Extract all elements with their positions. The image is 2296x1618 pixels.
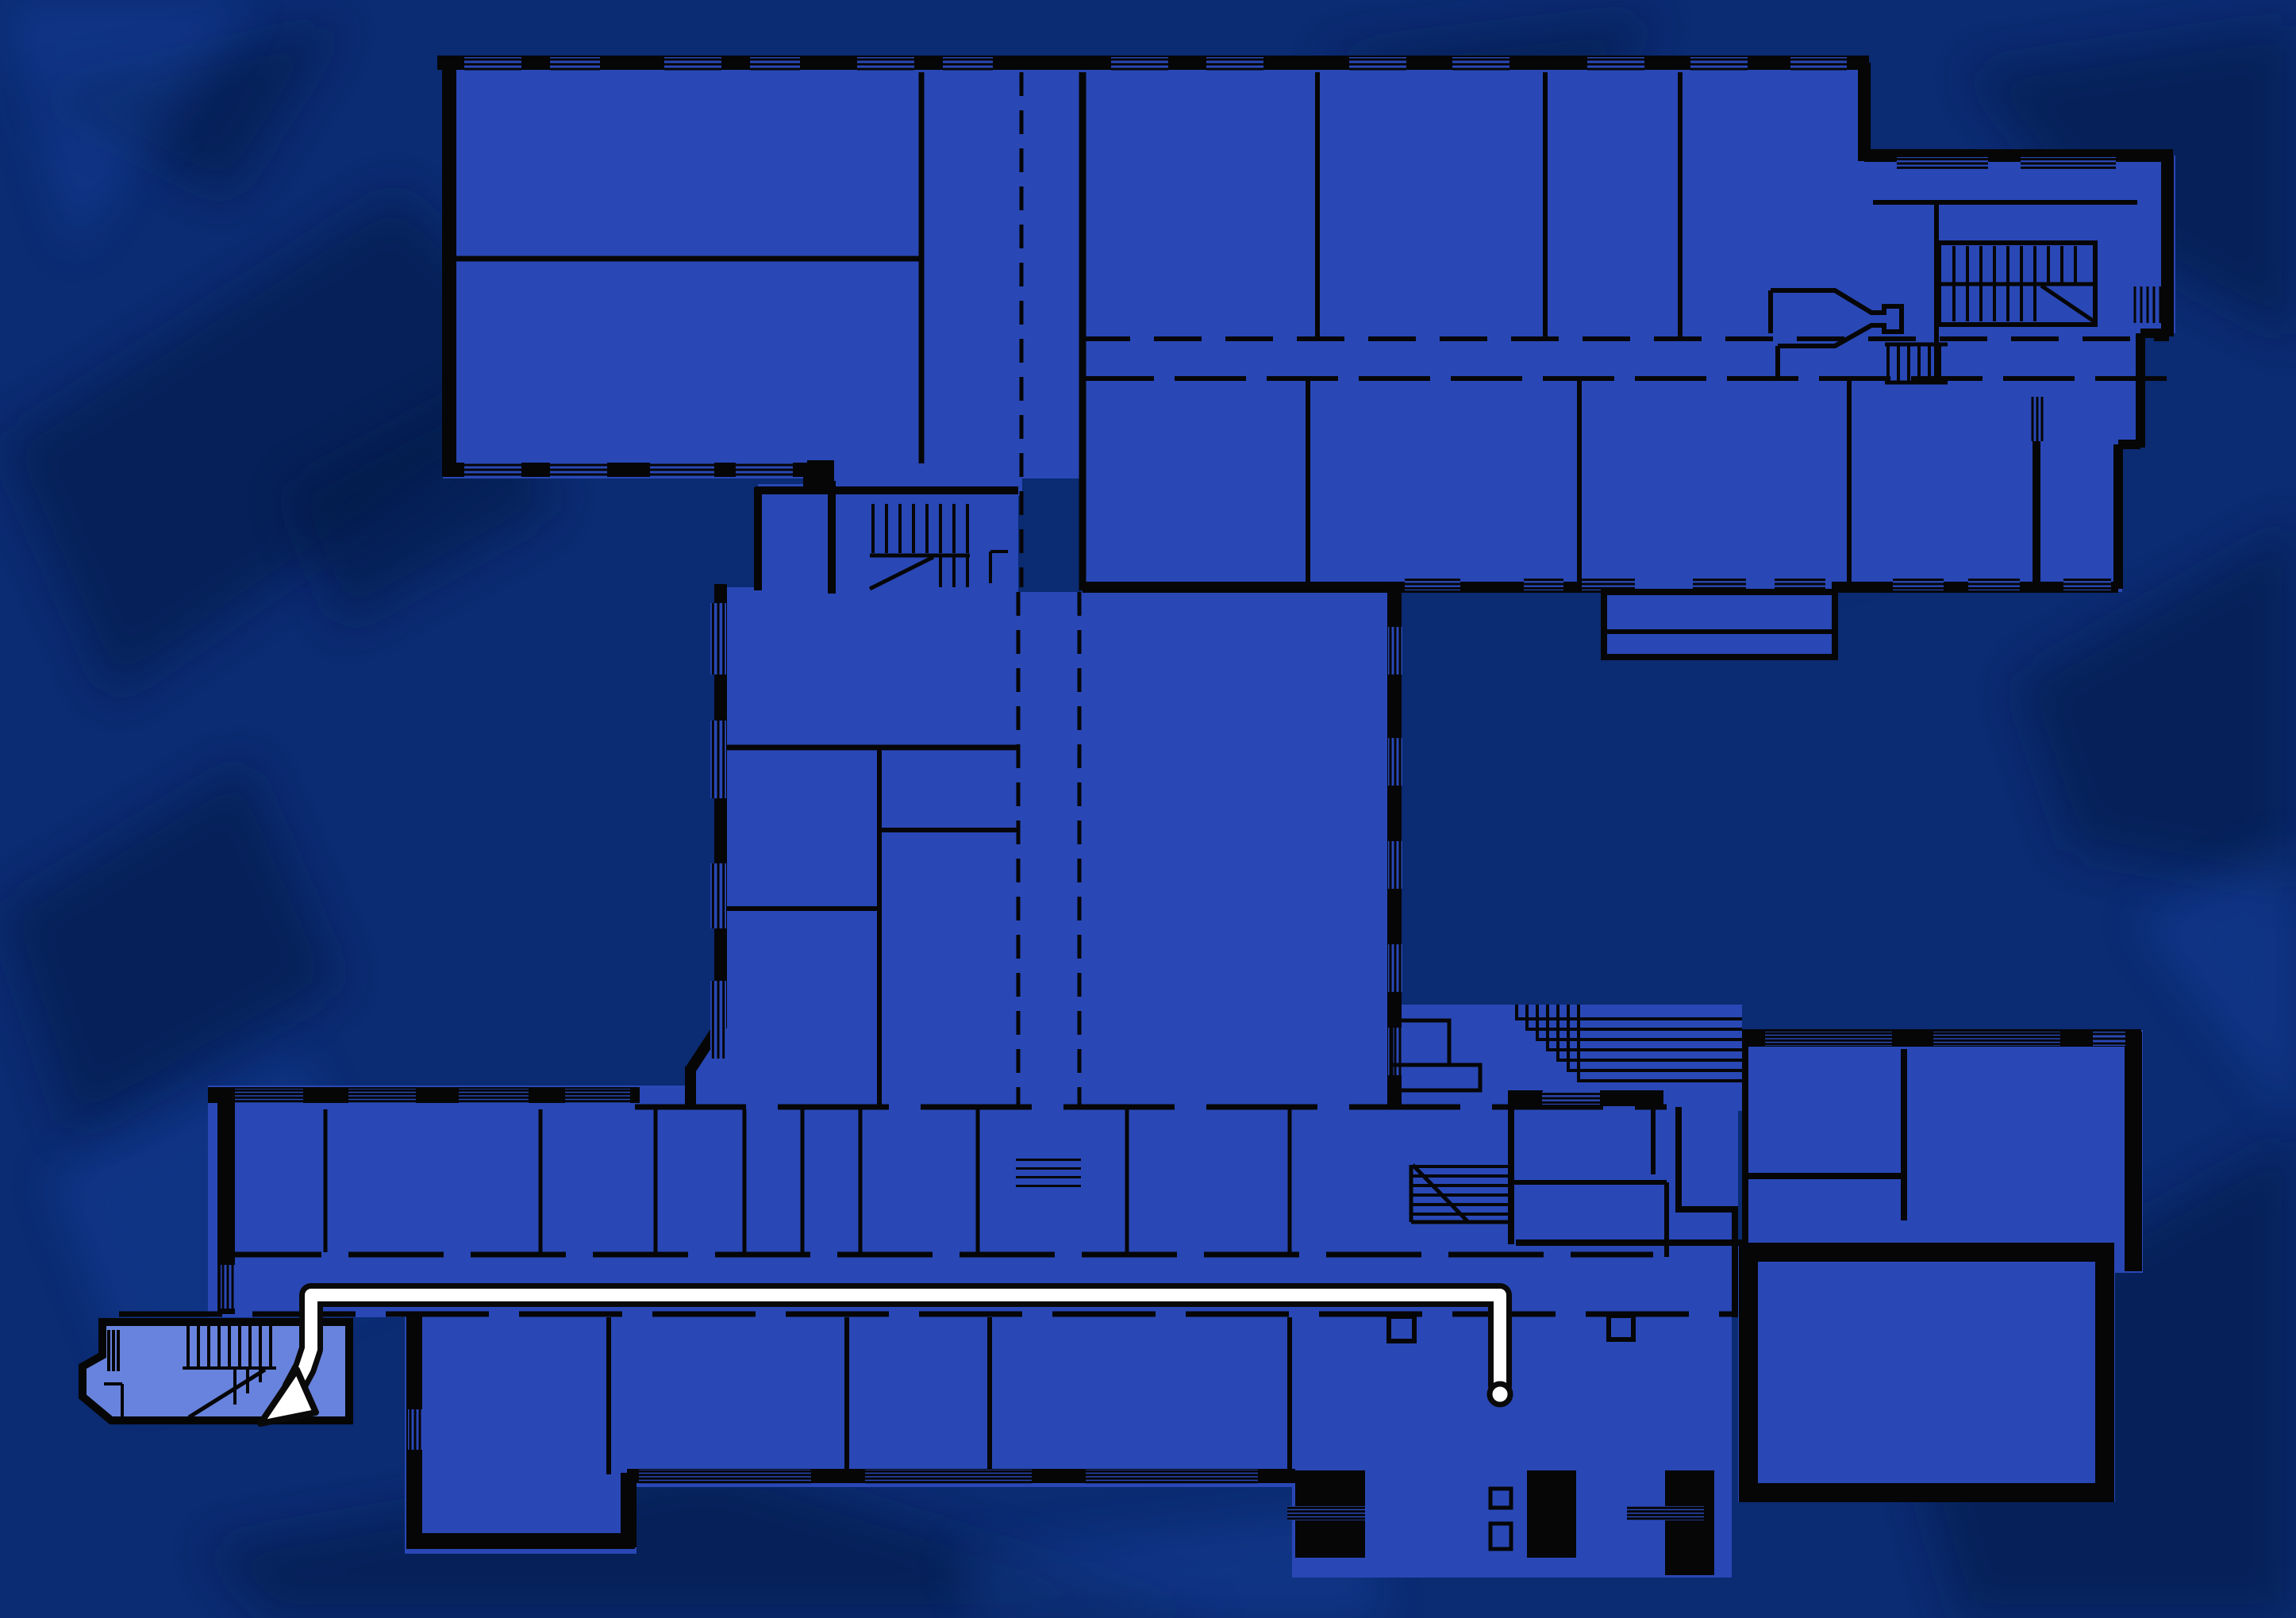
wall-block — [1600, 1090, 1663, 1106]
window — [639, 1470, 811, 1484]
window — [1349, 57, 1406, 71]
window — [710, 863, 726, 928]
window — [943, 57, 993, 71]
window — [736, 463, 793, 477]
window — [1897, 157, 1988, 170]
window — [1690, 57, 1748, 71]
window — [408, 1409, 422, 1450]
floor-slab — [1604, 592, 1835, 657]
window — [464, 463, 521, 477]
window — [650, 463, 714, 477]
window — [865, 1470, 1032, 1484]
window — [664, 57, 721, 71]
blueprint-page — [0, 0, 2296, 1618]
window — [2030, 397, 2044, 441]
window — [235, 1089, 303, 1103]
window — [565, 1089, 630, 1103]
wall-block — [1511, 1090, 1543, 1106]
window — [1790, 57, 1847, 71]
wall-block — [807, 460, 834, 494]
window — [1542, 1092, 1600, 1105]
wall-block — [1527, 1470, 1576, 1558]
window — [1111, 57, 1168, 71]
window — [750, 57, 800, 71]
window — [1893, 578, 1944, 590]
window — [550, 463, 607, 477]
window — [1405, 578, 1460, 590]
window — [1388, 738, 1402, 786]
window — [1524, 578, 1563, 590]
window — [1765, 1032, 1892, 1046]
window — [1287, 1506, 1365, 1520]
window — [1206, 57, 1263, 71]
window — [464, 57, 521, 71]
window — [221, 1265, 235, 1309]
window — [857, 57, 914, 71]
window — [550, 57, 600, 71]
window — [1388, 627, 1402, 674]
window — [710, 721, 726, 798]
window — [1388, 841, 1402, 889]
window — [1693, 578, 1746, 590]
window — [1086, 1470, 1258, 1484]
window — [710, 603, 726, 674]
window — [1452, 57, 1510, 71]
window — [710, 981, 726, 1059]
window — [1627, 1506, 1704, 1520]
window — [2021, 157, 2116, 170]
window — [2093, 1032, 2125, 1046]
window — [1775, 578, 1825, 590]
window — [1587, 57, 1644, 71]
window — [1388, 944, 1402, 992]
window — [348, 1089, 416, 1103]
window — [459, 1089, 529, 1103]
window — [1582, 578, 1635, 590]
window — [2063, 578, 2111, 590]
floor-plan-map — [0, 0, 2296, 1618]
floor-slab — [1738, 1243, 2115, 1502]
route-start-dot — [1490, 1384, 1510, 1405]
window — [1016, 1155, 1081, 1190]
wall-block — [1665, 1470, 1714, 1575]
window — [1933, 1032, 2060, 1046]
floor-slab — [1742, 1030, 2143, 1273]
window — [1968, 578, 2020, 590]
